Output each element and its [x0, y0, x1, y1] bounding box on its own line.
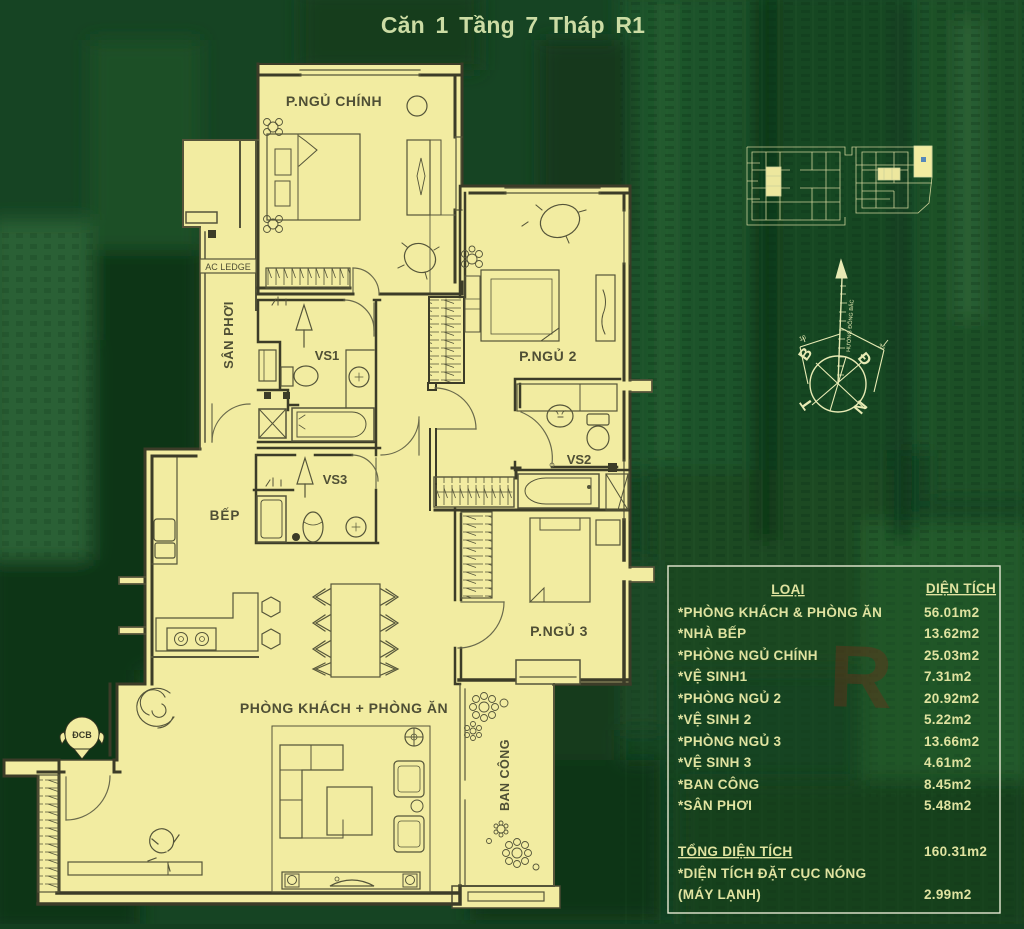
svg-text:SÂN PHƠI: SÂN PHƠI [221, 301, 236, 369]
svg-text:TỔNG DIỆN TÍCH: TỔNG DIỆN TÍCH [678, 844, 792, 859]
svg-text:VS2: VS2 [567, 452, 592, 467]
svg-text:25.03m2: 25.03m2 [924, 648, 979, 663]
svg-text:LOẠI: LOẠI [771, 582, 804, 597]
svg-text:*SÂN PHƠI: *SÂN PHƠI [678, 798, 752, 813]
svg-text:(MÁY LẠNH): (MÁY LẠNH) [678, 887, 761, 902]
svg-text:56.01m2: 56.01m2 [924, 605, 979, 620]
svg-text:P.NGỦ 2: P.NGỦ 2 [519, 347, 577, 364]
svg-text:*BAN CÔNG: *BAN CÔNG [678, 777, 759, 792]
svg-text:2.99m2: 2.99m2 [924, 887, 972, 902]
svg-text:5.22m2: 5.22m2 [924, 712, 972, 727]
svg-text:*NHÀ BẾP: *NHÀ BẾP [678, 626, 746, 641]
svg-text:*DIỆN TÍCH ĐẶT CỤC NÓNG: *DIỆN TÍCH ĐẶT CỤC NÓNG [678, 866, 866, 881]
svg-text:7.31m2: 7.31m2 [924, 669, 972, 684]
svg-text:P.NGỦ 3: P.NGỦ 3 [530, 622, 588, 639]
svg-text:13.66m2: 13.66m2 [924, 734, 979, 749]
svg-text:VS3: VS3 [323, 472, 348, 487]
svg-text:8.45m2: 8.45m2 [924, 777, 972, 792]
svg-text:*PHÒNG NGỦ 2: *PHÒNG NGỦ 2 [678, 691, 781, 706]
svg-text:BẾP: BẾP [210, 508, 241, 523]
svg-text:160.31m2: 160.31m2 [924, 844, 987, 859]
svg-text:*PHÒNG NGỦ 3: *PHÒNG NGỦ 3 [678, 734, 782, 749]
svg-text:*VỆ SINH 3: *VỆ SINH 3 [678, 755, 752, 770]
svg-text:ĐCB: ĐCB [72, 730, 92, 740]
svg-text:13.62m2: 13.62m2 [924, 626, 979, 641]
svg-text:PHÒNG KHÁCH + PHÒNG ĂN: PHÒNG KHÁCH + PHÒNG ĂN [240, 699, 448, 716]
svg-text:VS1: VS1 [315, 348, 340, 363]
svg-text:P.NGỦ CHÍNH: P.NGỦ CHÍNH [286, 92, 382, 109]
svg-text:*PHÒNG NGỦ CHÍNH: *PHÒNG NGỦ CHÍNH [678, 648, 818, 663]
svg-text:BAN CÔNG: BAN CÔNG [497, 739, 512, 811]
svg-text:*VỆ SINH1: *VỆ SINH1 [678, 669, 748, 684]
svg-text:*VỆ SINH 2: *VỆ SINH 2 [678, 712, 752, 727]
svg-text:DIỆN TÍCH: DIỆN TÍCH [926, 581, 996, 596]
svg-text:AC LEDGE: AC LEDGE [205, 262, 251, 272]
svg-text:4.61m2: 4.61m2 [924, 755, 972, 770]
svg-text:5.48m2: 5.48m2 [924, 798, 972, 813]
svg-text:20.92m2: 20.92m2 [924, 691, 979, 706]
svg-text:*PHÒNG KHÁCH & PHÒNG ĂN: *PHÒNG KHÁCH & PHÒNG ĂN [678, 605, 882, 620]
svg-text:Căn 1 Tầng 7 Tháp R1: Căn 1 Tầng 7 Tháp R1 [381, 12, 645, 38]
